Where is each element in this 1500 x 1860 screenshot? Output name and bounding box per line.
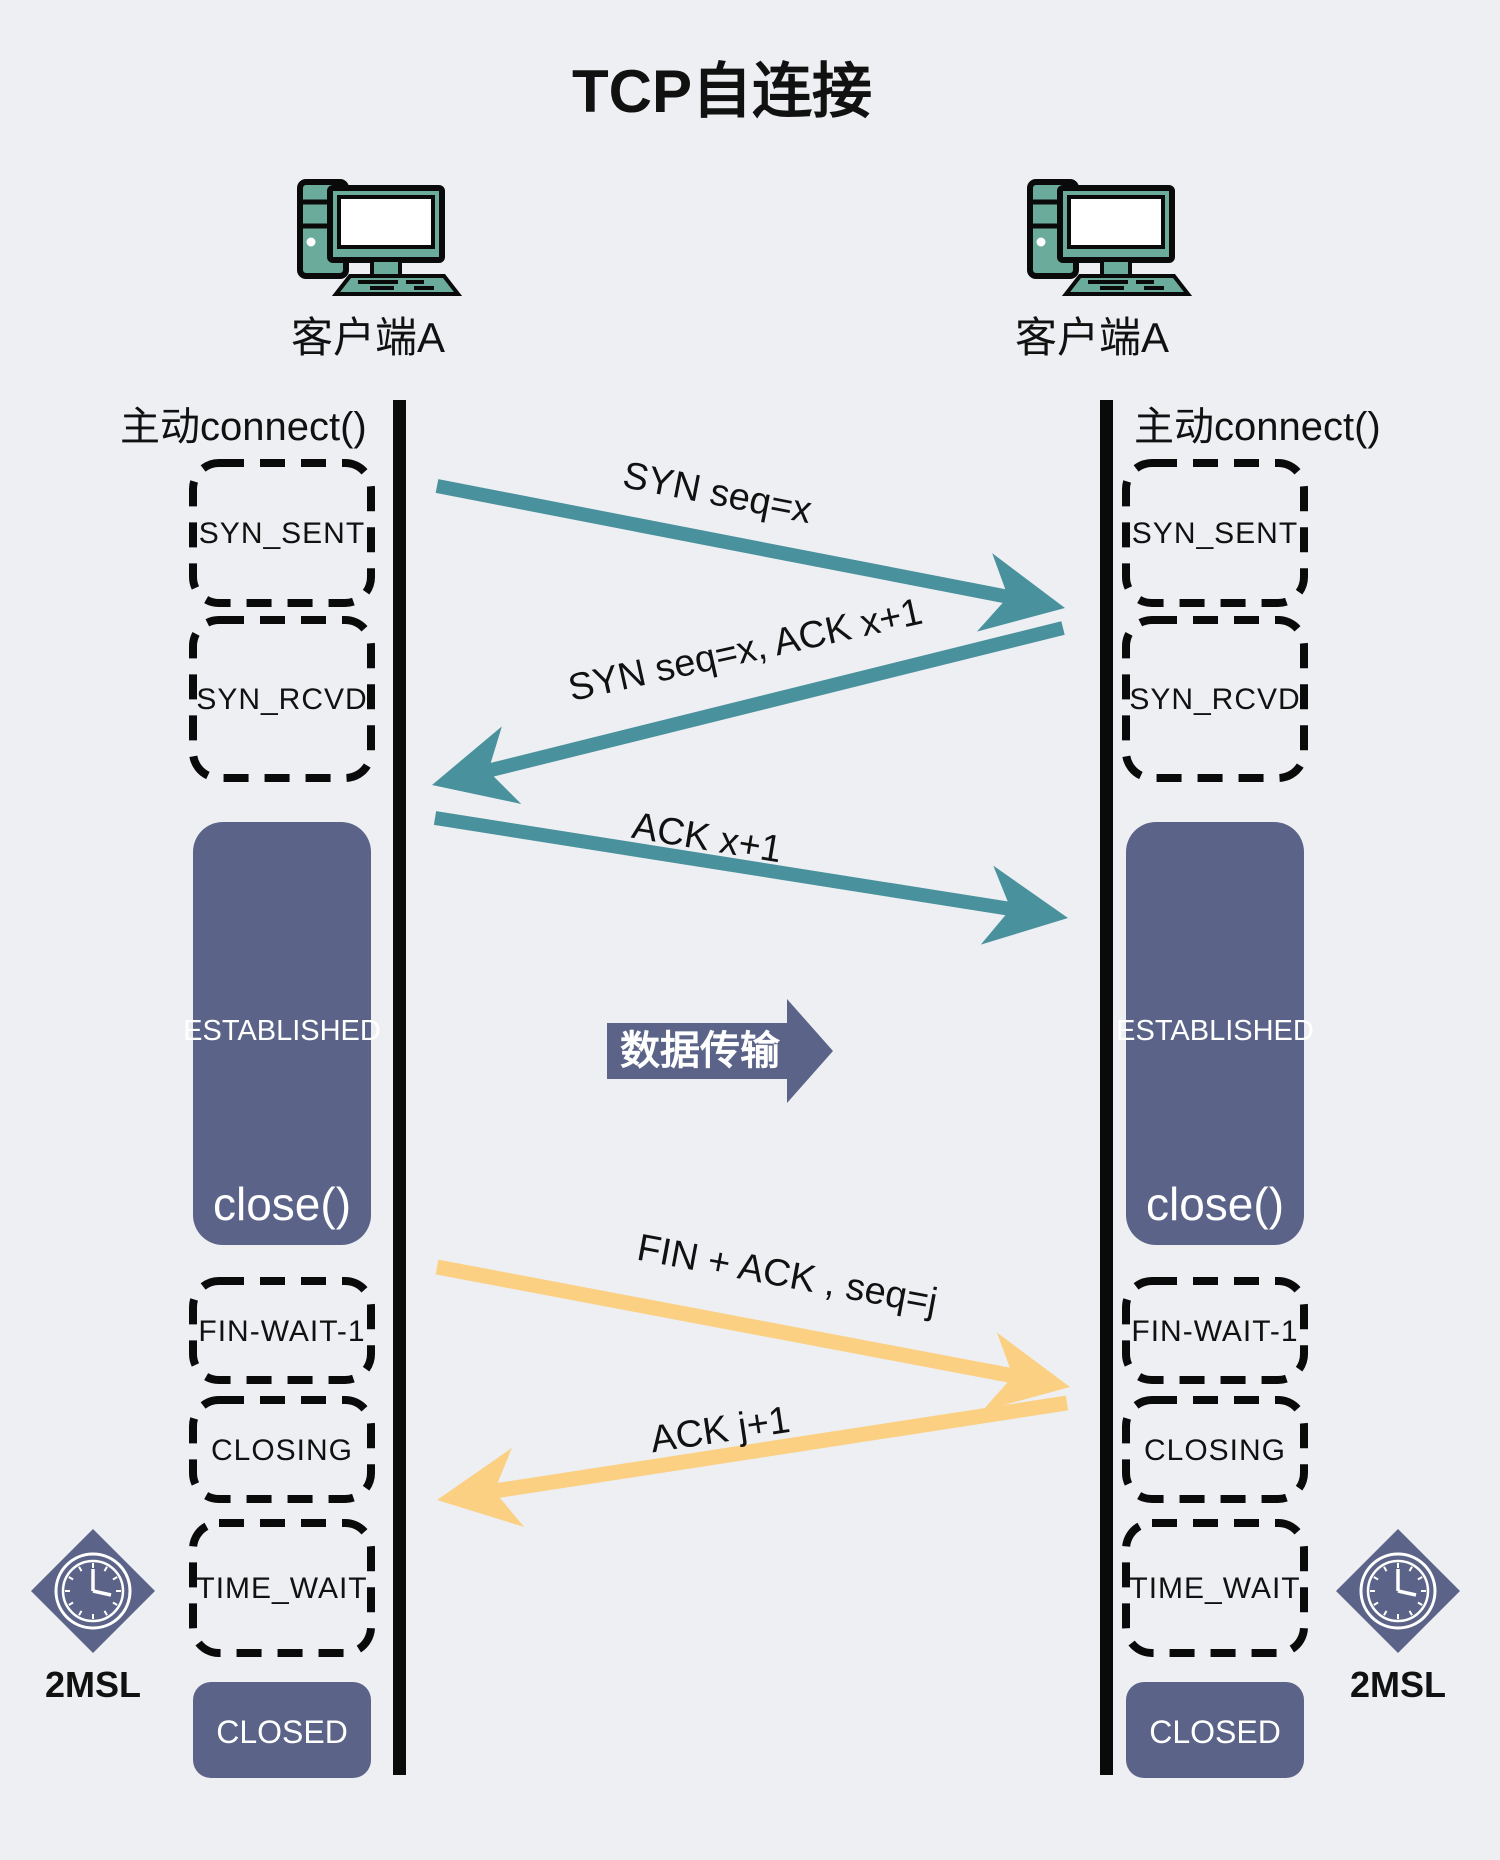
data-transfer-label: 数据传输 [620,1029,781,1073]
state-label-syn-sent: SYN_SENT [199,517,365,550]
close-call-label: close() [1146,1178,1284,1230]
state-label-established: ESTABLISHED [1116,1015,1314,1047]
client-label-right: 客户端A [1015,314,1169,361]
state-label-closed: CLOSED [216,1714,348,1750]
client-computer-icon-right [1030,182,1188,294]
close-call-label: close() [213,1178,351,1230]
state-label-syn-rcvd: SYN_RCVD [196,683,367,716]
diagram-title: TCP自连接 [572,58,872,125]
state-label-established: ESTABLISHED [183,1015,381,1047]
state-label-time-wait: TIME_WAIT [196,1572,367,1605]
timer-label-right: 2MSL [1350,1664,1446,1705]
state-label-fin-wait-1: FIN-WAIT-1 [1131,1315,1298,1348]
client-label-left: 客户端A [291,314,445,361]
state-label-syn-rcvd: SYN_RCVD [1129,683,1300,716]
client-computer-icon-left [300,182,458,294]
lifeline-right [1100,400,1113,1775]
state-label-fin-wait-1: FIN-WAIT-1 [198,1315,365,1348]
state-label-closing: CLOSING [211,1434,353,1467]
state-label-time-wait: TIME_WAIT [1129,1572,1300,1605]
state-label-closing: CLOSING [1144,1434,1286,1467]
connect-call-label-left: 主动connect() [120,405,367,449]
timer-label-left: 2MSL [45,1664,141,1705]
connect-call-label-right: 主动connect() [1134,405,1381,449]
state-label-closed: CLOSED [1149,1714,1281,1750]
state-label-syn-sent: SYN_SENT [1132,517,1298,550]
tcp-self-connect-diagram: TCP自连接 客户端A 客户端A 主动connect() 主动connect()… [0,0,1500,1860]
lifeline-left [393,400,406,1775]
